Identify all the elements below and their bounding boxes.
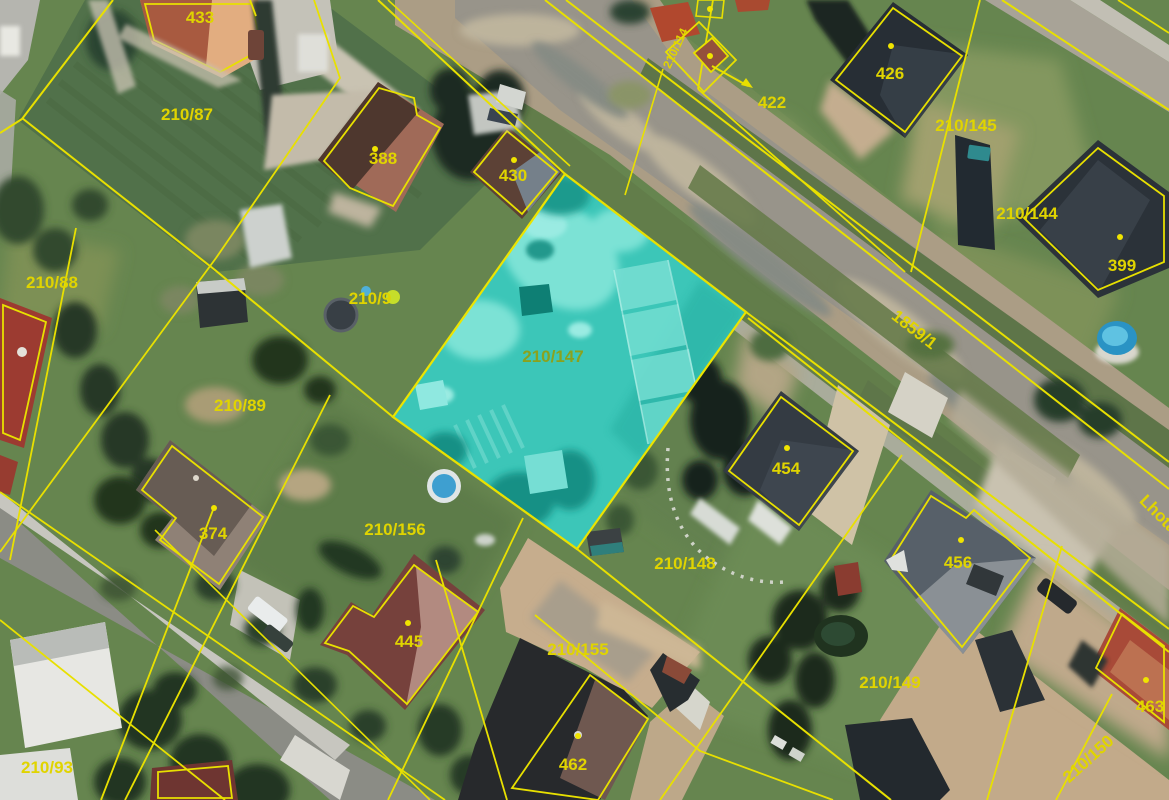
svg-text:433: 433 — [186, 8, 214, 27]
svg-text:445: 445 — [395, 632, 423, 651]
svg-text:210/89: 210/89 — [214, 396, 266, 415]
svg-text:462: 462 — [559, 755, 587, 774]
svg-text:210/149: 210/149 — [859, 673, 920, 692]
svg-text:210/155: 210/155 — [547, 640, 608, 659]
svg-text:426: 426 — [876, 64, 904, 83]
svg-text:210/144: 210/144 — [996, 204, 1058, 223]
svg-text:210/145: 210/145 — [935, 116, 996, 135]
svg-text:422: 422 — [758, 93, 786, 112]
svg-text:463: 463 — [1136, 697, 1164, 716]
svg-text:210/87: 210/87 — [161, 105, 213, 124]
svg-text:210/156: 210/156 — [364, 520, 425, 539]
svg-text:454: 454 — [772, 459, 801, 478]
svg-text:210/147: 210/147 — [522, 347, 583, 366]
svg-text:210/9: 210/9 — [349, 289, 392, 308]
svg-text:374: 374 — [199, 524, 228, 543]
svg-text:210/88: 210/88 — [26, 273, 78, 292]
svg-text:399: 399 — [1108, 256, 1136, 275]
svg-text:456: 456 — [944, 553, 972, 572]
svg-text:210/148: 210/148 — [654, 554, 715, 573]
svg-text:430: 430 — [499, 166, 527, 185]
svg-text:210/93: 210/93 — [21, 758, 73, 777]
svg-text:388: 388 — [369, 149, 397, 168]
